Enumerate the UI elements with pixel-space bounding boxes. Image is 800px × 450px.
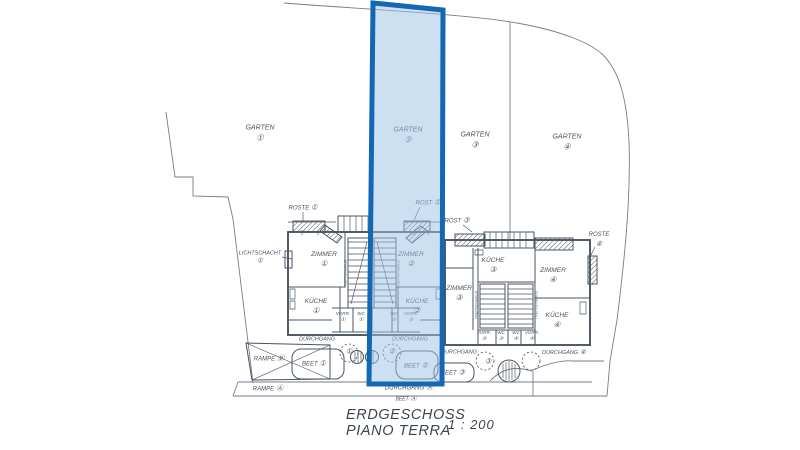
- label-beet-3: BEET③: [440, 368, 466, 378]
- label-durchgang-1: DURCHGANG: [298, 337, 336, 344]
- label-durchgang-4: DURCHGANG④: [541, 349, 587, 357]
- label-rost-3: ROST③: [443, 216, 470, 226]
- garden-dividers: [288, 6, 510, 240]
- drawing-scale: 1 : 200: [448, 417, 495, 432]
- label-vorr-3: VORR.③: [477, 330, 491, 342]
- label-rampe-a: RAMPEⒶ: [252, 384, 284, 394]
- label-beet-2: BEET②: [403, 361, 429, 371]
- site-plan-page: GARTEN① GARTEN② GARTEN③ GARTEN④ ROSTE① R…: [0, 0, 800, 450]
- label-roste-4: ROSTE④: [589, 232, 610, 248]
- label-kueche-1: KÜCHE①: [305, 298, 328, 316]
- label-durchgang-2: DURCHGANG: [391, 337, 429, 344]
- label-zimmer-2: ZIMMER②: [398, 251, 424, 269]
- label-garten-4: GARTEN④: [552, 133, 581, 152]
- label-garten-3: GARTEN③: [460, 131, 489, 150]
- label-garten-2: GARTEN②: [393, 126, 422, 145]
- label-wc-1: WC①: [357, 311, 365, 323]
- label-treppenhaus-3: TREPPENHAUS: [475, 291, 480, 319]
- badge-durchgang-1: ①: [345, 347, 353, 357]
- badge-durchgang-2: ②: [388, 347, 396, 357]
- label-zimmer-4: ZIMMER④: [540, 267, 566, 285]
- label-garten-1: GARTEN①: [245, 124, 274, 143]
- label-wc-2: WC②: [390, 311, 398, 323]
- label-vorr-1: VORR.①: [336, 311, 350, 323]
- label-zimmer-1: ZIMMER①: [311, 251, 337, 269]
- label-wc-4: WC④: [512, 330, 520, 342]
- label-kueche-4: KÜCHE④: [546, 312, 569, 330]
- label-treppenhaus-2: TREPPENHAUS: [397, 260, 402, 288]
- label-beet-1: BEET①: [301, 359, 327, 369]
- label-roste-1: ROSTE①: [287, 203, 318, 213]
- label-wc-3: WC③: [497, 330, 505, 342]
- label-vorr-2: VORR.②: [404, 311, 418, 323]
- label-vorr-4: VORR.④: [525, 330, 539, 342]
- label-zimmer-3: ZIMMER③: [446, 285, 472, 303]
- label-treppenhaus-4: TREPPENHAUS: [535, 291, 540, 319]
- badge-durchgang-3: ③: [484, 357, 492, 367]
- label-rampe-b: RAMPEⒷ: [253, 354, 285, 364]
- label-rost-2: ROST②: [414, 198, 441, 208]
- label-durchgang-3: DURCHGANG: [440, 350, 478, 357]
- label-durchgang-a: DURCHGANGⒶ: [384, 383, 434, 393]
- label-treppenhaus-1: TREPPENHAUS: [344, 260, 349, 288]
- label-kueche-3: KÜCHE③: [482, 257, 505, 275]
- label-lichtschacht-1: LICHTSCHACHT①: [239, 251, 281, 266]
- label-beet-a: BEETⒶ: [395, 396, 418, 403]
